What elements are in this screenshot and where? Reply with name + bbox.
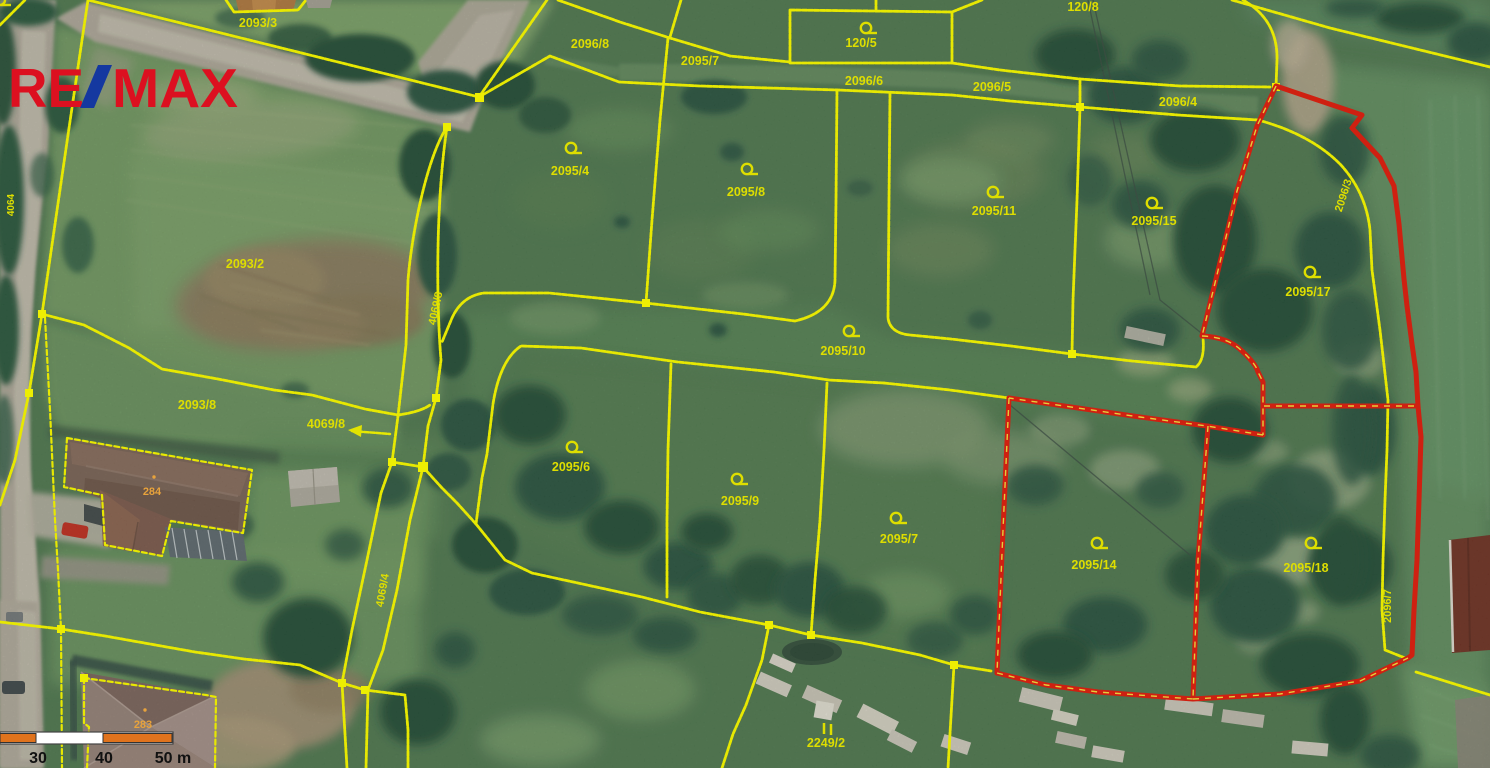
svg-text:284: 284 <box>143 486 162 498</box>
svg-text:2095/14: 2095/14 <box>1071 558 1116 572</box>
svg-text:2093/2: 2093/2 <box>226 257 264 271</box>
svg-text:50 m: 50 m <box>155 750 191 767</box>
svg-text:2095/10: 2095/10 <box>820 344 865 358</box>
svg-text:2095/7: 2095/7 <box>880 532 918 546</box>
svg-text:40: 40 <box>95 750 113 767</box>
svg-text:2095/6: 2095/6 <box>552 460 590 474</box>
svg-text:120/5: 120/5 <box>845 36 876 50</box>
svg-text:283: 283 <box>134 719 152 731</box>
svg-text:MAX: MAX <box>112 57 238 119</box>
svg-text:4069/8: 4069/8 <box>307 417 345 431</box>
svg-text:2095/8: 2095/8 <box>727 185 765 199</box>
svg-text:2095/11: 2095/11 <box>972 204 1017 218</box>
svg-text:2093/8: 2093/8 <box>178 398 216 412</box>
svg-text:2095/4: 2095/4 <box>551 164 589 178</box>
svg-text:2096/5: 2096/5 <box>973 80 1011 94</box>
svg-text:2095/7: 2095/7 <box>681 54 719 68</box>
svg-text:2095/9: 2095/9 <box>721 494 759 508</box>
svg-text:4064: 4064 <box>6 193 17 216</box>
svg-text:120/8: 120/8 <box>1067 0 1098 14</box>
svg-text:2096/7: 2096/7 <box>1382 589 1394 623</box>
svg-text:30: 30 <box>29 750 47 767</box>
svg-text:2096/4: 2096/4 <box>1159 95 1197 109</box>
svg-text:2095/15: 2095/15 <box>1131 214 1176 228</box>
svg-text:2096/6: 2096/6 <box>845 74 883 88</box>
svg-text:2095/18: 2095/18 <box>1283 561 1328 575</box>
svg-text:2096/8: 2096/8 <box>571 37 609 51</box>
svg-text:RE: RE <box>8 57 84 119</box>
svg-text:2093/3: 2093/3 <box>239 16 277 30</box>
svg-text:2249/2: 2249/2 <box>807 736 845 750</box>
svg-text:2095/17: 2095/17 <box>1285 285 1330 299</box>
